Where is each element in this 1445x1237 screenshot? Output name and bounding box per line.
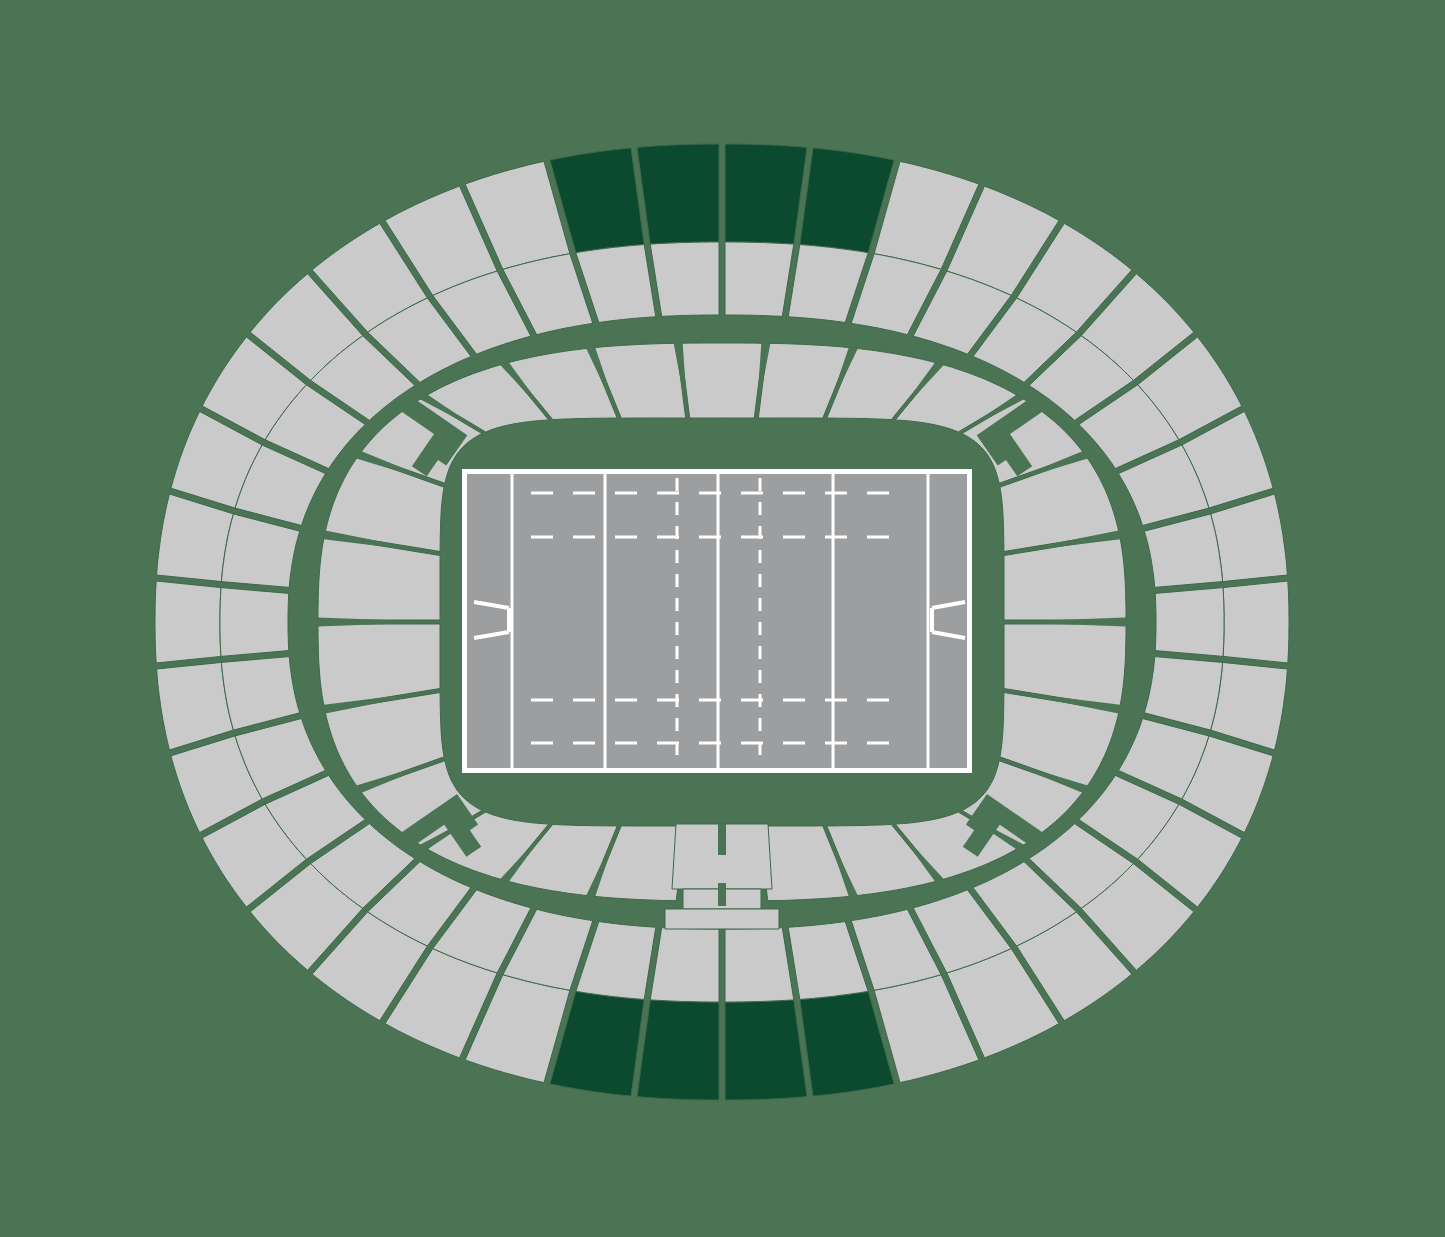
players-tunnel [665,824,779,929]
stadium-map-canvas [0,0,1445,1237]
middle-ring-section[interactable] [650,928,719,1002]
middle-ring-section[interactable] [220,588,289,657]
tunnel-base-block[interactable] [665,909,779,929]
rugby-pitch [462,469,972,773]
outer-ring-section-highlighted[interactable] [725,1000,807,1100]
stadium-seating-map [0,0,1445,1237]
middle-ring-section[interactable] [650,242,719,316]
inner-bowl-section[interactable] [680,343,764,418]
outer-ring-section-highlighted[interactable] [637,144,719,244]
tunnel-slot-upper [718,824,726,855]
middle-ring-section[interactable] [725,242,794,316]
tunnel-slot-lower [718,883,726,906]
outer-ring-section[interactable] [1223,581,1289,663]
outer-ring-section-highlighted[interactable] [637,1000,719,1100]
middle-ring-section[interactable] [725,928,794,1002]
outer-ring-section[interactable] [155,581,221,663]
outer-ring-section-highlighted[interactable] [725,144,807,244]
middle-ring-section[interactable] [1155,588,1224,657]
